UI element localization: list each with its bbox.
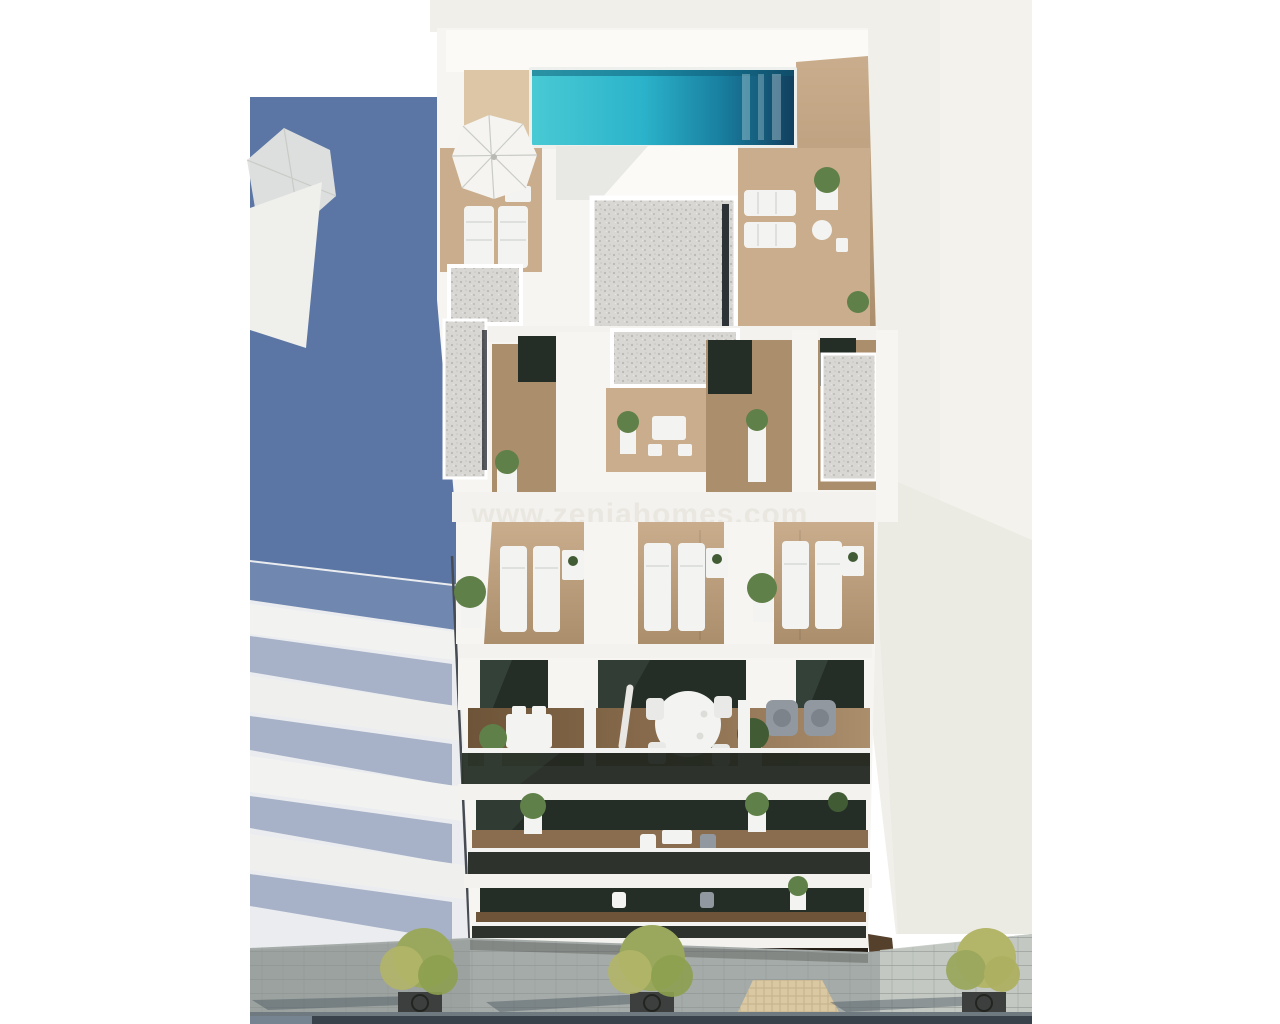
roof-gravel-block-left [449, 266, 521, 324]
rooftop-terrace-right [738, 148, 870, 334]
balcony-floor-3 [464, 792, 872, 888]
main-building: www.zeniahomes.com [437, 28, 898, 996]
neighbor-building-balconies [250, 556, 472, 955]
neighbor-building-shadow-wall [247, 58, 470, 585]
mid-bistro-terrace [606, 388, 706, 492]
road-strip [250, 1016, 1032, 1024]
terrace-divider-pier-1 [584, 522, 638, 644]
mid-terrace-1 [492, 336, 556, 496]
floor-3-balustrade [468, 848, 870, 874]
rooftop-chair [836, 238, 848, 252]
rooftop-pool [529, 67, 797, 149]
gravel-parapet-left [444, 320, 486, 478]
mid-terrace-2 [706, 340, 792, 492]
rooftop-terrace-level [440, 30, 878, 342]
scene-svg: www.zeniahomes.com [0, 0, 1280, 1024]
floor-4-balustrade [462, 748, 870, 784]
rooftop-table [812, 220, 832, 240]
gravel-parapet-right [822, 354, 876, 480]
lounger-terrace-row [454, 522, 874, 666]
balcony-floor-4 [458, 658, 872, 800]
roof-gravel-core [592, 198, 736, 332]
rooftop-plant-right [814, 167, 840, 210]
aerial-render-scene: www.zeniahomes.com [0, 0, 1280, 1024]
rooftop-plant-corner [847, 291, 869, 313]
rooftop-parasol [452, 115, 537, 199]
pool-water [532, 70, 794, 145]
